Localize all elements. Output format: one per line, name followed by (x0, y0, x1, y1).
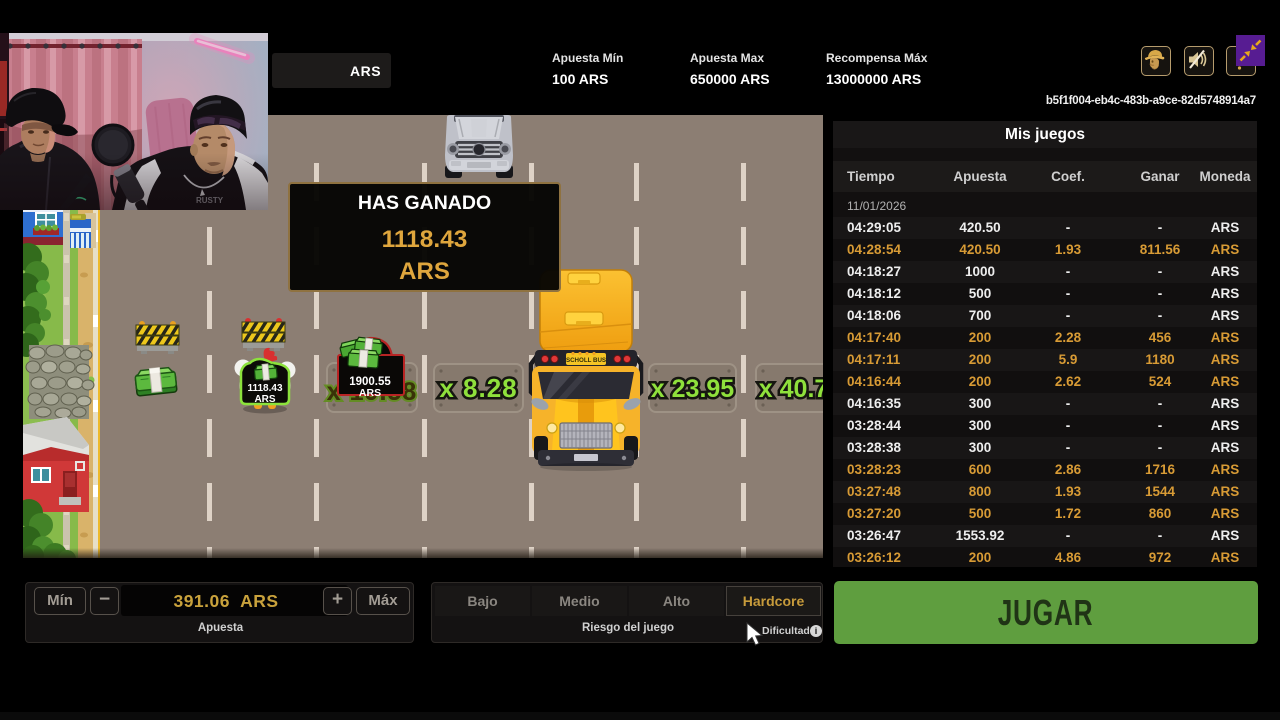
svg-text:x 23.95: x 23.95 (651, 375, 735, 403)
svg-text:ARS: ARS (359, 387, 381, 399)
svg-text:SCHOLL BUS: SCHOLL BUS (566, 357, 606, 364)
svg-text:x 40.76: x 40.76 (759, 375, 823, 403)
svg-text:1118.43: 1118.43 (247, 383, 282, 394)
svg-text:x 8.28: x 8.28 (439, 373, 517, 403)
svg-text:ARS: ARS (254, 394, 275, 405)
